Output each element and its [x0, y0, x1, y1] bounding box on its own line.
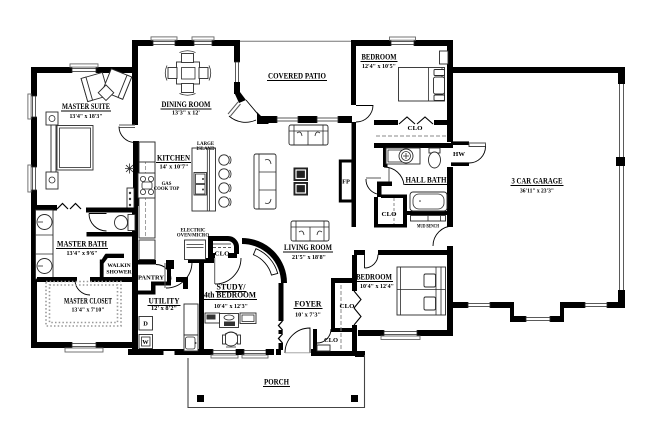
svg-text:3 CAR GARAGE: 3 CAR GARAGE	[512, 177, 563, 186]
svg-text:CLO: CLO	[340, 303, 355, 310]
svg-text:D: D	[143, 321, 148, 328]
svg-text:MUD BENCH: MUD BENCH	[417, 225, 439, 230]
svg-text:13'4" x 9'6": 13'4" x 9'6"	[67, 251, 98, 257]
svg-text:FOYER: FOYER	[295, 300, 323, 309]
svg-text:COVERED PATIO: COVERED PATIO	[268, 72, 326, 81]
svg-text:CLO: CLO	[324, 337, 338, 344]
svg-text:HALL BATH: HALL BATH	[406, 176, 447, 185]
svg-text:KITCHEN: KITCHEN	[157, 154, 190, 163]
svg-text:36'11" x 23'3": 36'11" x 23'3"	[520, 189, 554, 195]
svg-text:MASTER BATH: MASTER BATH	[57, 240, 107, 249]
svg-text:4th BEDROOM: 4th BEDROOM	[204, 291, 256, 300]
svg-text:UTILITY: UTILITY	[149, 297, 180, 306]
svg-text:COOK TOP: COOK TOP	[154, 187, 180, 192]
svg-text:BEDROOM: BEDROOM	[356, 273, 392, 282]
svg-text:CLO: CLO	[215, 251, 230, 258]
svg-text:13'4" x 18'3": 13'4" x 18'3"	[70, 114, 103, 120]
svg-text:HW: HW	[453, 151, 466, 158]
svg-text:13'3" x 12': 13'3" x 12'	[172, 111, 200, 117]
svg-text:WALKIN: WALKIN	[107, 263, 130, 269]
svg-text:14' x 10'7": 14' x 10'7"	[160, 165, 189, 171]
svg-text:W: W	[142, 339, 149, 346]
svg-text:10'4" x 12'4": 10'4" x 12'4"	[360, 284, 394, 290]
svg-text:13'4" x 7'10": 13'4" x 7'10"	[72, 308, 105, 314]
svg-text:CLO: CLO	[408, 125, 423, 132]
svg-text:FP: FP	[342, 179, 350, 186]
svg-text:MASTER SUITE: MASTER SUITE	[62, 102, 110, 111]
svg-text:PANTRY: PANTRY	[138, 275, 164, 282]
svg-text:PORCH: PORCH	[264, 378, 289, 387]
svg-text:OVEN/MICRO: OVEN/MICRO	[177, 234, 210, 239]
svg-text:12'4" x 10'5": 12'4" x 10'5"	[362, 64, 396, 70]
svg-text:21'5" x 18'8": 21'5" x 18'8"	[292, 255, 326, 261]
svg-text:LIVING ROOM: LIVING ROOM	[284, 243, 332, 252]
svg-text:SHOWER: SHOWER	[106, 270, 132, 276]
svg-text:ISLAND: ISLAND	[196, 147, 215, 152]
svg-text:CLO: CLO	[382, 211, 397, 218]
svg-text:10' x 7'3": 10' x 7'3"	[295, 313, 321, 319]
svg-text:12' x 8'2": 12' x 8'2"	[151, 306, 177, 312]
svg-text:10'4" x 12'3": 10'4" x 12'3"	[214, 304, 248, 310]
svg-text:DINING ROOM: DINING ROOM	[162, 100, 211, 109]
svg-text:MASTER CLOSET: MASTER CLOSET	[64, 297, 112, 306]
svg-text:BEDROOM: BEDROOM	[362, 53, 397, 62]
